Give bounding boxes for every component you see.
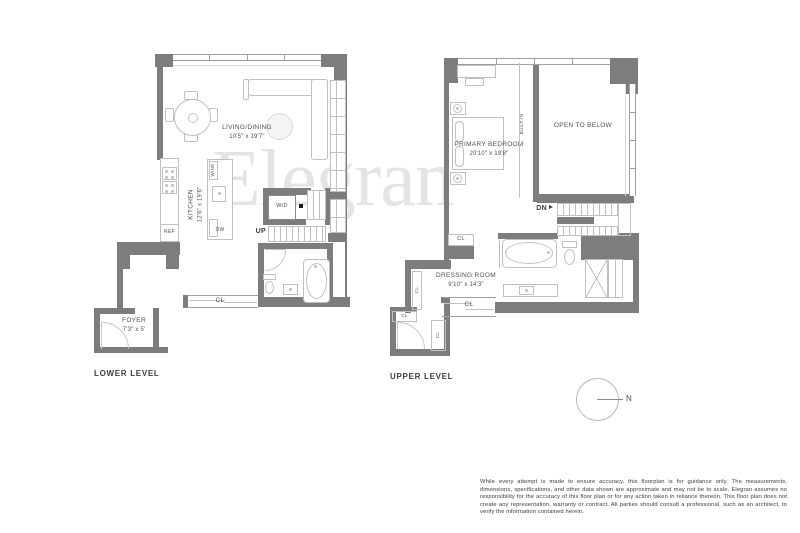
built-in-shelf <box>330 80 346 192</box>
room-name: KITCHEN <box>188 172 197 236</box>
faucet-dot <box>314 265 317 268</box>
wall <box>328 233 347 242</box>
ref-label: REF <box>160 229 179 236</box>
cl-label: CL <box>448 236 474 243</box>
door-leaf <box>265 249 286 250</box>
tv-icon <box>465 78 484 86</box>
open-to-below-label: OPEN TO BELOW <box>541 122 625 131</box>
wall <box>537 194 634 203</box>
floorplan-page: Elegran <box>0 0 800 533</box>
wall <box>117 242 130 269</box>
dw-label: DW <box>207 227 233 234</box>
stairs-down-run <box>557 226 618 236</box>
bathtub-basin <box>306 263 327 299</box>
cl-label-rotated: CL <box>435 327 441 343</box>
lamp-dot <box>456 107 459 110</box>
faucet-dot <box>525 289 528 292</box>
wall <box>633 233 639 313</box>
faucet-dot <box>547 251 550 254</box>
kitchen-label: KITCHEN 12'6" x 19'6" <box>188 172 205 236</box>
toilet-tank <box>263 274 276 280</box>
closet-line <box>442 297 496 298</box>
faucet-dot <box>289 288 292 291</box>
sofa-chaise <box>311 79 328 160</box>
cooktop-icon <box>162 167 177 180</box>
stairs-up-run <box>268 226 326 242</box>
upper-level-title: UPPER LEVEL <box>390 372 520 383</box>
window-sill-line <box>625 84 626 196</box>
glass-panel-line <box>499 240 500 268</box>
room-name: FOYER <box>111 317 157 326</box>
dn-label: DN <box>532 204 547 213</box>
room-dims: 9'10" x 14'3" <box>424 281 508 289</box>
wall <box>117 269 123 308</box>
window-mullion <box>630 168 635 169</box>
built-in-shelf <box>330 199 346 233</box>
window-mullion <box>630 140 635 141</box>
toilet-bowl <box>265 281 274 294</box>
stair-landing <box>618 203 631 236</box>
dressing-room-label: DRESSING ROOM 9'10" x 14'3" <box>424 272 508 289</box>
toilet-bowl <box>564 249 575 265</box>
door-swing-arc <box>265 250 286 271</box>
cl-label-rotated: CL <box>414 282 420 298</box>
lamp-dot <box>456 177 459 180</box>
wd-label: W/D <box>268 203 296 210</box>
closet-line <box>442 316 496 317</box>
window-mullion <box>496 59 497 64</box>
living-dining-label: LIVING/DINING 10'5" x 19'7" <box>205 124 289 141</box>
burner-dots <box>165 170 168 173</box>
dining-chair <box>165 108 174 122</box>
window-band-vertical <box>629 84 636 196</box>
toilet-tank <box>562 241 577 248</box>
wall <box>155 54 173 67</box>
closet-line <box>187 295 258 296</box>
window-mullion <box>534 59 535 64</box>
wall <box>258 243 264 297</box>
room-dims: 10'5" x 19'7" <box>205 133 289 141</box>
door-swing-arc <box>398 322 425 349</box>
stairs-down <box>557 203 618 216</box>
wall <box>533 63 539 202</box>
up-label: UP <box>248 227 266 236</box>
window-sill-line <box>173 65 321 66</box>
foyer-label: FOYER 7'3" x 5' <box>111 317 157 334</box>
sofa-armrest <box>243 79 249 100</box>
cl-label: CL <box>447 301 491 310</box>
window-mullion <box>284 55 285 60</box>
cl-label: CL <box>198 297 242 306</box>
disclaimer-text: While every attempt is made to ensure ac… <box>480 479 787 517</box>
room-dims: 12'6" x 19'6" <box>196 172 204 236</box>
cl-label: CL <box>392 313 417 319</box>
built-in-label: BUILT-IN <box>519 102 525 146</box>
wall <box>495 302 638 313</box>
wall <box>557 217 594 224</box>
burner-dots <box>165 184 168 187</box>
wall <box>94 308 135 314</box>
compass-needle <box>597 399 623 400</box>
window-band <box>173 54 321 61</box>
dn-arrow-icon <box>549 205 553 209</box>
north-label: N <box>626 394 638 405</box>
window-mullion <box>572 59 573 64</box>
door-handle-dot <box>299 204 303 208</box>
x-closet-icon <box>585 259 608 298</box>
closet-line <box>187 307 258 308</box>
cabinet-line <box>615 259 616 298</box>
room-name: LIVING/DINING <box>205 124 289 133</box>
faucet-dot <box>218 192 221 195</box>
wall <box>166 242 179 269</box>
dresser <box>457 65 496 78</box>
wall <box>448 246 474 259</box>
wall <box>334 54 347 82</box>
wall <box>345 242 347 297</box>
window-mullion <box>209 55 210 60</box>
room-name: DRESSING ROOM <box>424 272 508 281</box>
shelf-line <box>336 80 337 192</box>
stairs-up <box>307 190 326 220</box>
window-mullion <box>247 55 248 60</box>
bathtub-basin <box>505 242 553 264</box>
wine-label: WINE <box>210 160 216 180</box>
window-band <box>458 58 610 65</box>
plans-layer: REF WINE DW KITCHEN 12'6" x 19'6" <box>0 0 800 533</box>
window-mullion <box>630 112 635 113</box>
wall <box>263 188 311 195</box>
wall <box>444 63 449 260</box>
room-dims: 7'3" x 5' <box>111 326 157 334</box>
shelf-line <box>336 199 337 233</box>
lower-level-title: LOWER LEVEL <box>94 369 224 380</box>
pillow <box>455 121 464 142</box>
dining-table-center <box>188 113 198 123</box>
wall <box>405 260 451 269</box>
wall <box>157 67 163 160</box>
wall <box>610 58 638 84</box>
wall <box>581 233 638 260</box>
cooktop-icon <box>162 181 177 194</box>
